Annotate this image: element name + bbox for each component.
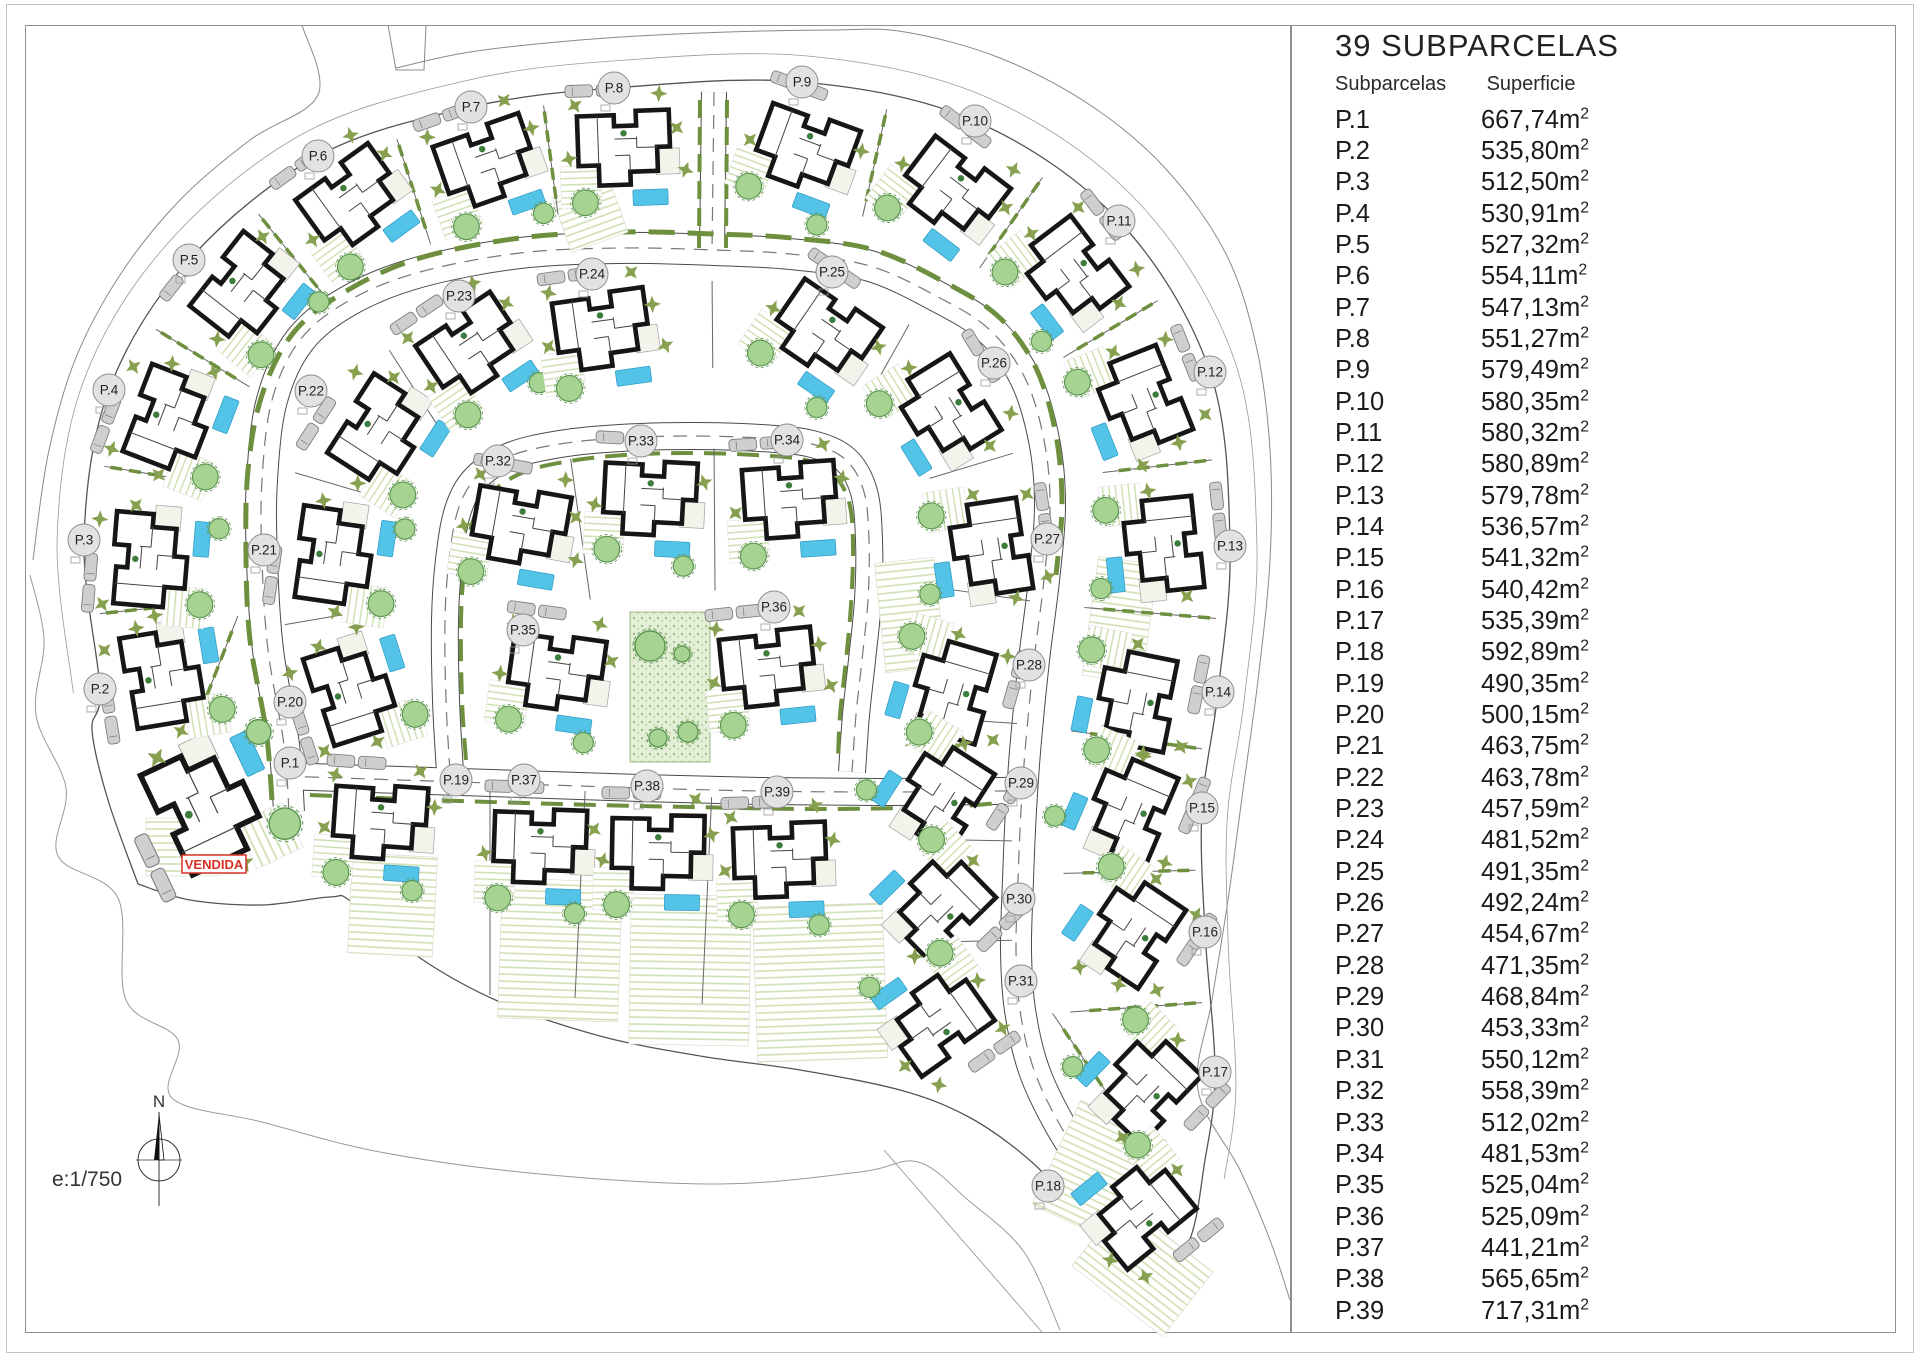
svg-text:P.23: P.23 <box>446 289 472 304</box>
legend-row: P.28471,35m2 <box>1335 944 1895 975</box>
parcel-label-P.33: P.33 <box>625 425 657 464</box>
parcel-label-P.38: P.38 <box>631 770 663 809</box>
legend-row: P.9579,49m2 <box>1335 349 1895 380</box>
legend-row: P.17535,39m2 <box>1335 600 1895 631</box>
legend-row: P.16540,42m2 <box>1335 568 1895 599</box>
parcel-label-P.5: P.5 <box>173 244 205 283</box>
legend-row: P.27454,67m2 <box>1335 913 1895 944</box>
svg-text:P.12: P.12 <box>1197 365 1223 380</box>
svg-text:P.30: P.30 <box>1006 892 1032 907</box>
legend-row: P.14536,57m2 <box>1335 505 1895 536</box>
svg-text:P.1: P.1 <box>281 756 300 771</box>
legend-row: P.29468,84m2 <box>1335 976 1895 1007</box>
house-P.3 <box>80 489 233 632</box>
sold-badge: VENDIDA <box>182 855 246 873</box>
legend-row: P.21463,75m2 <box>1335 725 1895 756</box>
legend-row: P.24481,52m2 <box>1335 819 1895 850</box>
legend-col-parcel: Subparcelas <box>1335 73 1481 96</box>
legend-parcel-area: 717,31m2 <box>1481 1297 1589 1325</box>
parcel-label-P.24: P.24 <box>576 258 608 297</box>
svg-text:P.37: P.37 <box>511 773 537 788</box>
svg-text:P.15: P.15 <box>1189 801 1215 816</box>
svg-text:P.6: P.6 <box>309 149 328 164</box>
legend-row: P.23457,59m2 <box>1335 788 1895 819</box>
scale-label: e:1/750 <box>52 1168 122 1191</box>
parcel-label-P.12: P.12 <box>1194 356 1226 395</box>
parcel-label-P.25: P.25 <box>816 256 848 295</box>
svg-text:P.36: P.36 <box>761 600 787 615</box>
svg-text:P.19: P.19 <box>443 773 469 788</box>
legend-row: P.26492,24m2 <box>1335 882 1895 913</box>
legend-row: P.30453,33m2 <box>1335 1007 1895 1038</box>
legend-header: Subparcelas Superficie <box>1335 73 1895 96</box>
parcel-label-P.16: P.16 <box>1189 916 1221 955</box>
legend-row: P.38565,65m2 <box>1335 1258 1895 1289</box>
legend-row: P.31550,12m2 <box>1335 1038 1895 1069</box>
legend-title: 39 SUBPARCELAS <box>1335 28 1895 64</box>
svg-text:P.20: P.20 <box>277 695 303 710</box>
legend-row: P.25491,35m2 <box>1335 850 1895 881</box>
svg-text:P.17: P.17 <box>1202 1065 1228 1080</box>
parcel-label-P.36: P.36 <box>758 591 790 630</box>
legend-row: P.32558,39m2 <box>1335 1070 1895 1101</box>
legend-row: P.2535,80m2 <box>1335 129 1895 160</box>
svg-text:P.28: P.28 <box>1016 658 1042 673</box>
legend-row: P.22463,78m2 <box>1335 756 1895 787</box>
legend-row: P.3512,50m2 <box>1335 161 1895 192</box>
legend-row: P.33512,02m2 <box>1335 1101 1895 1132</box>
svg-text:P.33: P.33 <box>628 434 654 449</box>
svg-text:P.29: P.29 <box>1008 776 1034 791</box>
legend-row: P.6554,11m2 <box>1335 255 1895 286</box>
parcel-label-P.8: P.8 <box>598 72 630 111</box>
legend-row: P.10580,35m2 <box>1335 380 1895 411</box>
legend-parcel-id: P.39 <box>1335 1296 1481 1327</box>
svg-text:P.11: P.11 <box>1106 214 1131 229</box>
legend-row: P.12580,89m2 <box>1335 443 1895 474</box>
svg-text:P.18: P.18 <box>1035 1179 1061 1194</box>
parcel-label-P.19: P.19 <box>440 764 472 803</box>
legend-row: P.13579,78m2 <box>1335 474 1895 505</box>
house-P.13 <box>1078 474 1233 619</box>
legend-row: P.19490,35m2 <box>1335 662 1895 693</box>
legend-row: P.20500,15m2 <box>1335 694 1895 725</box>
legend-rows: P.1667,74m2P.2535,80m2P.3512,50m2P.4530,… <box>1335 98 1895 1320</box>
svg-text:P.38: P.38 <box>634 779 660 794</box>
svg-text:P.24: P.24 <box>579 267 606 282</box>
legend-row: P.5527,32m2 <box>1335 223 1895 254</box>
legend-separator <box>1290 25 1292 1332</box>
svg-text:P.2: P.2 <box>91 682 110 697</box>
legend-row: P.7547,13m2 <box>1335 286 1895 317</box>
svg-text:P.32: P.32 <box>485 454 511 469</box>
svg-text:P.22: P.22 <box>298 384 324 399</box>
svg-text:P.14: P.14 <box>1205 685 1232 700</box>
legend-row: P.1667,74m2 <box>1335 98 1895 129</box>
svg-text:P.9: P.9 <box>793 75 812 90</box>
north-arrow <box>136 1112 182 1206</box>
svg-text:P.3: P.3 <box>75 533 94 548</box>
svg-text:P.39: P.39 <box>764 785 790 800</box>
svg-text:P.4: P.4 <box>100 383 119 398</box>
svg-text:P.26: P.26 <box>981 356 1007 371</box>
svg-text:P.5: P.5 <box>180 253 199 268</box>
svg-text:P.7: P.7 <box>462 100 481 115</box>
legend-row: P.34481,53m2 <box>1335 1132 1895 1163</box>
house-P.8 <box>556 81 698 218</box>
svg-text:P.25: P.25 <box>819 265 845 280</box>
legend-row: P.37441,21m2 <box>1335 1226 1895 1257</box>
legend-row: P.18592,89m2 <box>1335 631 1895 662</box>
legend-row: P.4530,91m2 <box>1335 192 1895 223</box>
svg-text:P.27: P.27 <box>1034 532 1060 547</box>
svg-text:P.8: P.8 <box>605 81 624 96</box>
legend-row: P.36525,09m2 <box>1335 1195 1895 1226</box>
legend-row: P.35525,04m2 <box>1335 1164 1895 1195</box>
parcel-label-P.9: P.9 <box>786 66 818 105</box>
legend-col-area: Superficie <box>1487 73 1576 96</box>
svg-text:P.16: P.16 <box>1192 925 1218 940</box>
north-label: N <box>153 1092 165 1111</box>
svg-text:P.10: P.10 <box>962 114 988 129</box>
parcel-label-P.14: P.14 <box>1202 676 1234 715</box>
legend-row: P.8551,27m2 <box>1335 317 1895 348</box>
legend-row: P.39717,31m2 <box>1335 1289 1895 1320</box>
house-P.12 <box>1054 313 1229 491</box>
parcel-label-P.6: P.6 <box>302 140 334 179</box>
sold-label: VENDIDA <box>185 857 244 872</box>
parcel-label-P.7: P.7 <box>455 91 487 130</box>
svg-text:P.35: P.35 <box>510 623 536 638</box>
svg-text:P.13: P.13 <box>1217 539 1243 554</box>
legend-row: P.15541,32m2 <box>1335 537 1895 568</box>
svg-text:P.34: P.34 <box>774 433 801 448</box>
legend-row: P.11580,32m2 <box>1335 411 1895 442</box>
svg-text:P.31: P.31 <box>1008 974 1034 989</box>
legend-panel: 39 SUBPARCELAS Subparcelas Superficie P.… <box>1335 28 1895 1320</box>
svg-text:P.21: P.21 <box>251 543 277 558</box>
house-P.35 <box>481 599 630 758</box>
